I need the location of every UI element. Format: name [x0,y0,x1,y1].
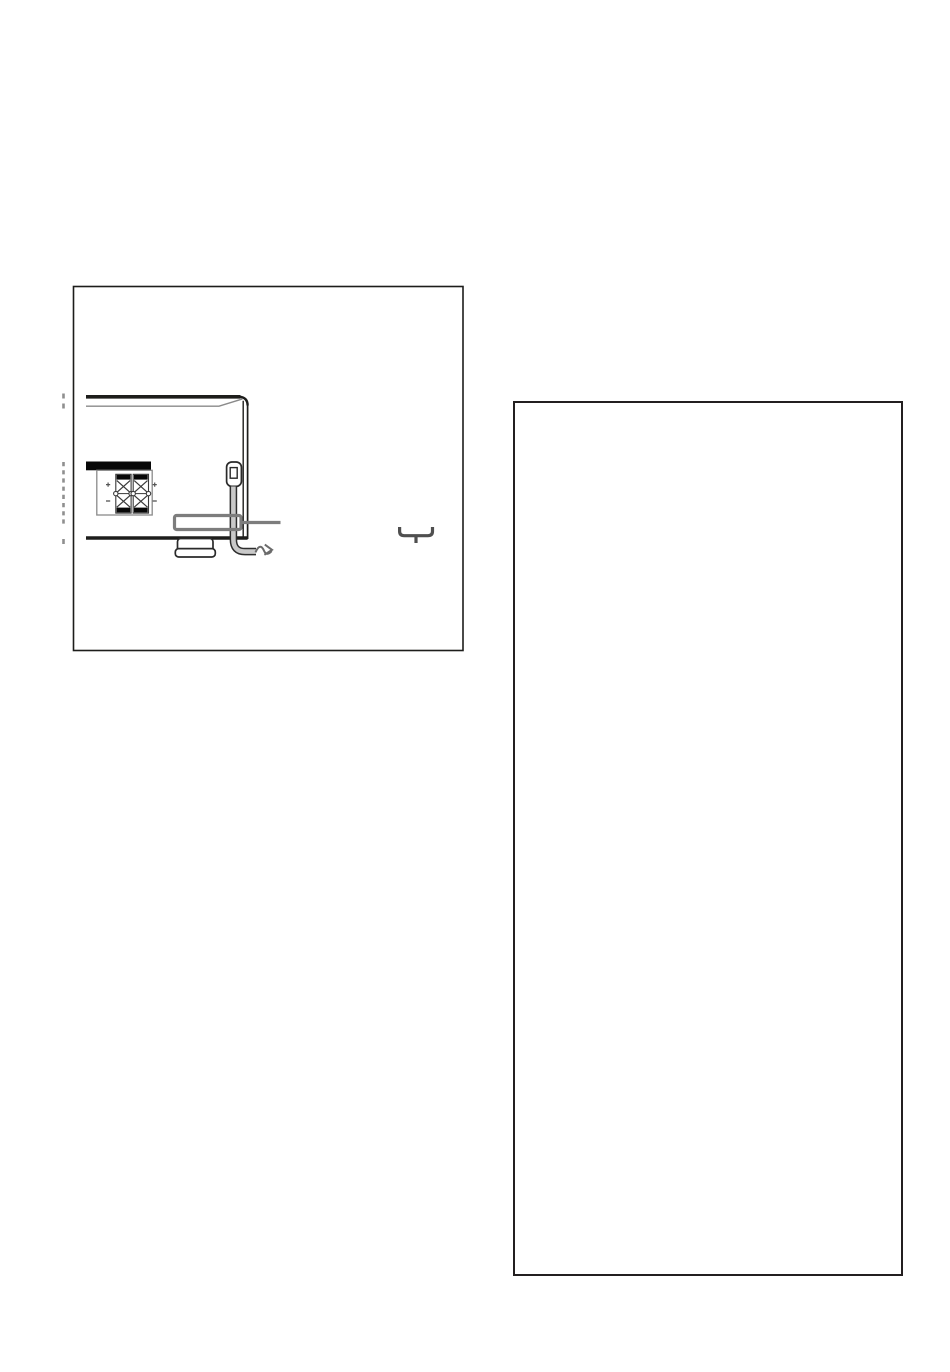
foot-base [175,549,215,557]
speaker-terminal-block-icon [86,462,157,516]
power-cord-strain-relief-icon [227,462,242,486]
note-box [513,401,903,1276]
terminal-top-cap [134,475,148,480]
terminal-side-nub [146,491,150,495]
terminal-side-nub [131,491,135,495]
terminal-side-nub [114,491,118,495]
terminal-column [131,474,151,513]
terminal-column [114,474,134,513]
terminal-bottom-cap [117,508,131,513]
terminal-top-cap [117,475,131,480]
terminal-bottom-cap [134,508,148,513]
strain-relief-inner [230,468,237,479]
chassis-foot-icon [175,539,215,558]
manual-page [0,0,950,1372]
terminal-panel-black-bar [86,462,151,471]
